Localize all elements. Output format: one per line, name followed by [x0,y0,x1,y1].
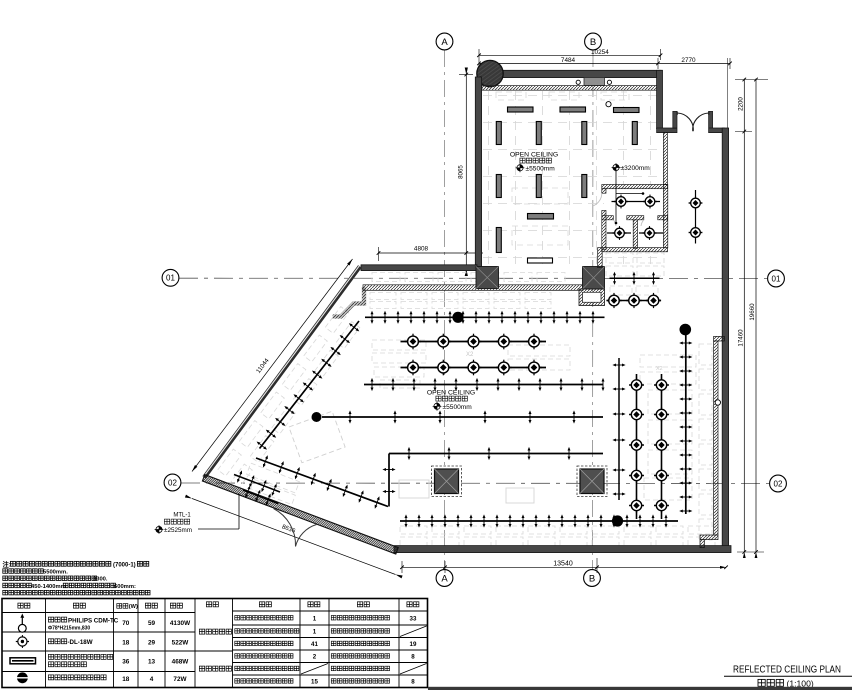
svg-text:A: A [441,37,448,48]
svg-text:7484: 7484 [561,57,576,64]
svg-text:8065: 8065 [458,165,465,179]
svg-text:8: 8 [411,654,415,661]
svg-text:注:: 注: [3,560,11,569]
svg-text:13: 13 [148,659,156,666]
svg-text:Φ78*H215mm,830: Φ78*H215mm,830 [48,626,90,632]
svg-text:02: 02 [774,479,783,488]
svg-text:1: 1 [313,615,317,622]
svg-text:±3200mm: ±3200mm [621,165,651,172]
svg-text:REFLECTED CEILING PLAN: REFLECTED CEILING PLAN [733,665,841,676]
svg-text:19: 19 [410,641,417,648]
svg-text:(W): (W) [129,604,138,610]
svg-text:01: 01 [166,274,175,283]
svg-text:-DL-18W: -DL-18W [68,639,93,646]
svg-text:72W: 72W [173,676,187,683]
svg-text:17460: 17460 [737,329,744,347]
svg-text:468W: 468W [172,659,190,666]
svg-text:29: 29 [148,640,156,647]
svg-text:36: 36 [122,659,130,666]
svg-text:02: 02 [168,478,177,487]
svg-text:70: 70 [122,620,130,627]
svg-text:B: B [590,37,596,48]
svg-text:01: 01 [772,274,781,283]
svg-text:4: 4 [150,676,154,683]
svg-text:8: 8 [411,679,415,686]
svg-text:±5500mm: ±5500mm [443,404,473,411]
svg-text:5500mm.: 5500mm. [43,570,68,576]
svg-text:2: 2 [313,654,317,661]
svg-text:OPEN CEILING: OPEN CEILING [427,390,475,397]
svg-text:4808: 4808 [414,246,429,253]
svg-text:A: A [441,573,448,584]
svg-text:19660: 19660 [749,303,756,321]
svg-text:18: 18 [122,676,130,683]
svg-text:B: B [589,573,595,584]
svg-text:1: 1 [313,629,317,636]
svg-text:2200: 2200 [737,97,744,111]
svg-text:59: 59 [148,620,156,627]
svg-text:X2: X2 [466,352,474,358]
svg-text:(7000-1): (7000-1) [113,562,136,568]
svg-text:33: 33 [410,615,417,622]
svg-text:522W: 522W [172,640,190,647]
svg-text:±2525mm: ±2525mm [164,527,192,534]
svg-text:OPEN CEILING: OPEN CEILING [510,152,558,159]
svg-text:3300.: 3300. [93,577,108,583]
svg-text:2770: 2770 [681,57,696,64]
svg-text:MTL-1: MTL-1 [173,513,191,519]
svg-text:±5500mm: ±5500mm [526,165,556,172]
svg-text:450-1400mm: 450-1400mm [31,584,66,590]
svg-text:15: 15 [311,679,318,686]
svg-text:4130W: 4130W [170,620,191,627]
svg-text:41: 41 [311,641,318,648]
svg-text:PHILIPS CDM-TC: PHILIPS CDM-TC [68,617,119,624]
svg-text:18: 18 [122,640,130,647]
svg-text:600mm:: 600mm: [114,584,136,590]
svg-text:X2: X2 [656,366,663,372]
svg-text:13540: 13540 [553,561,573,568]
svg-text:10254: 10254 [591,49,609,56]
